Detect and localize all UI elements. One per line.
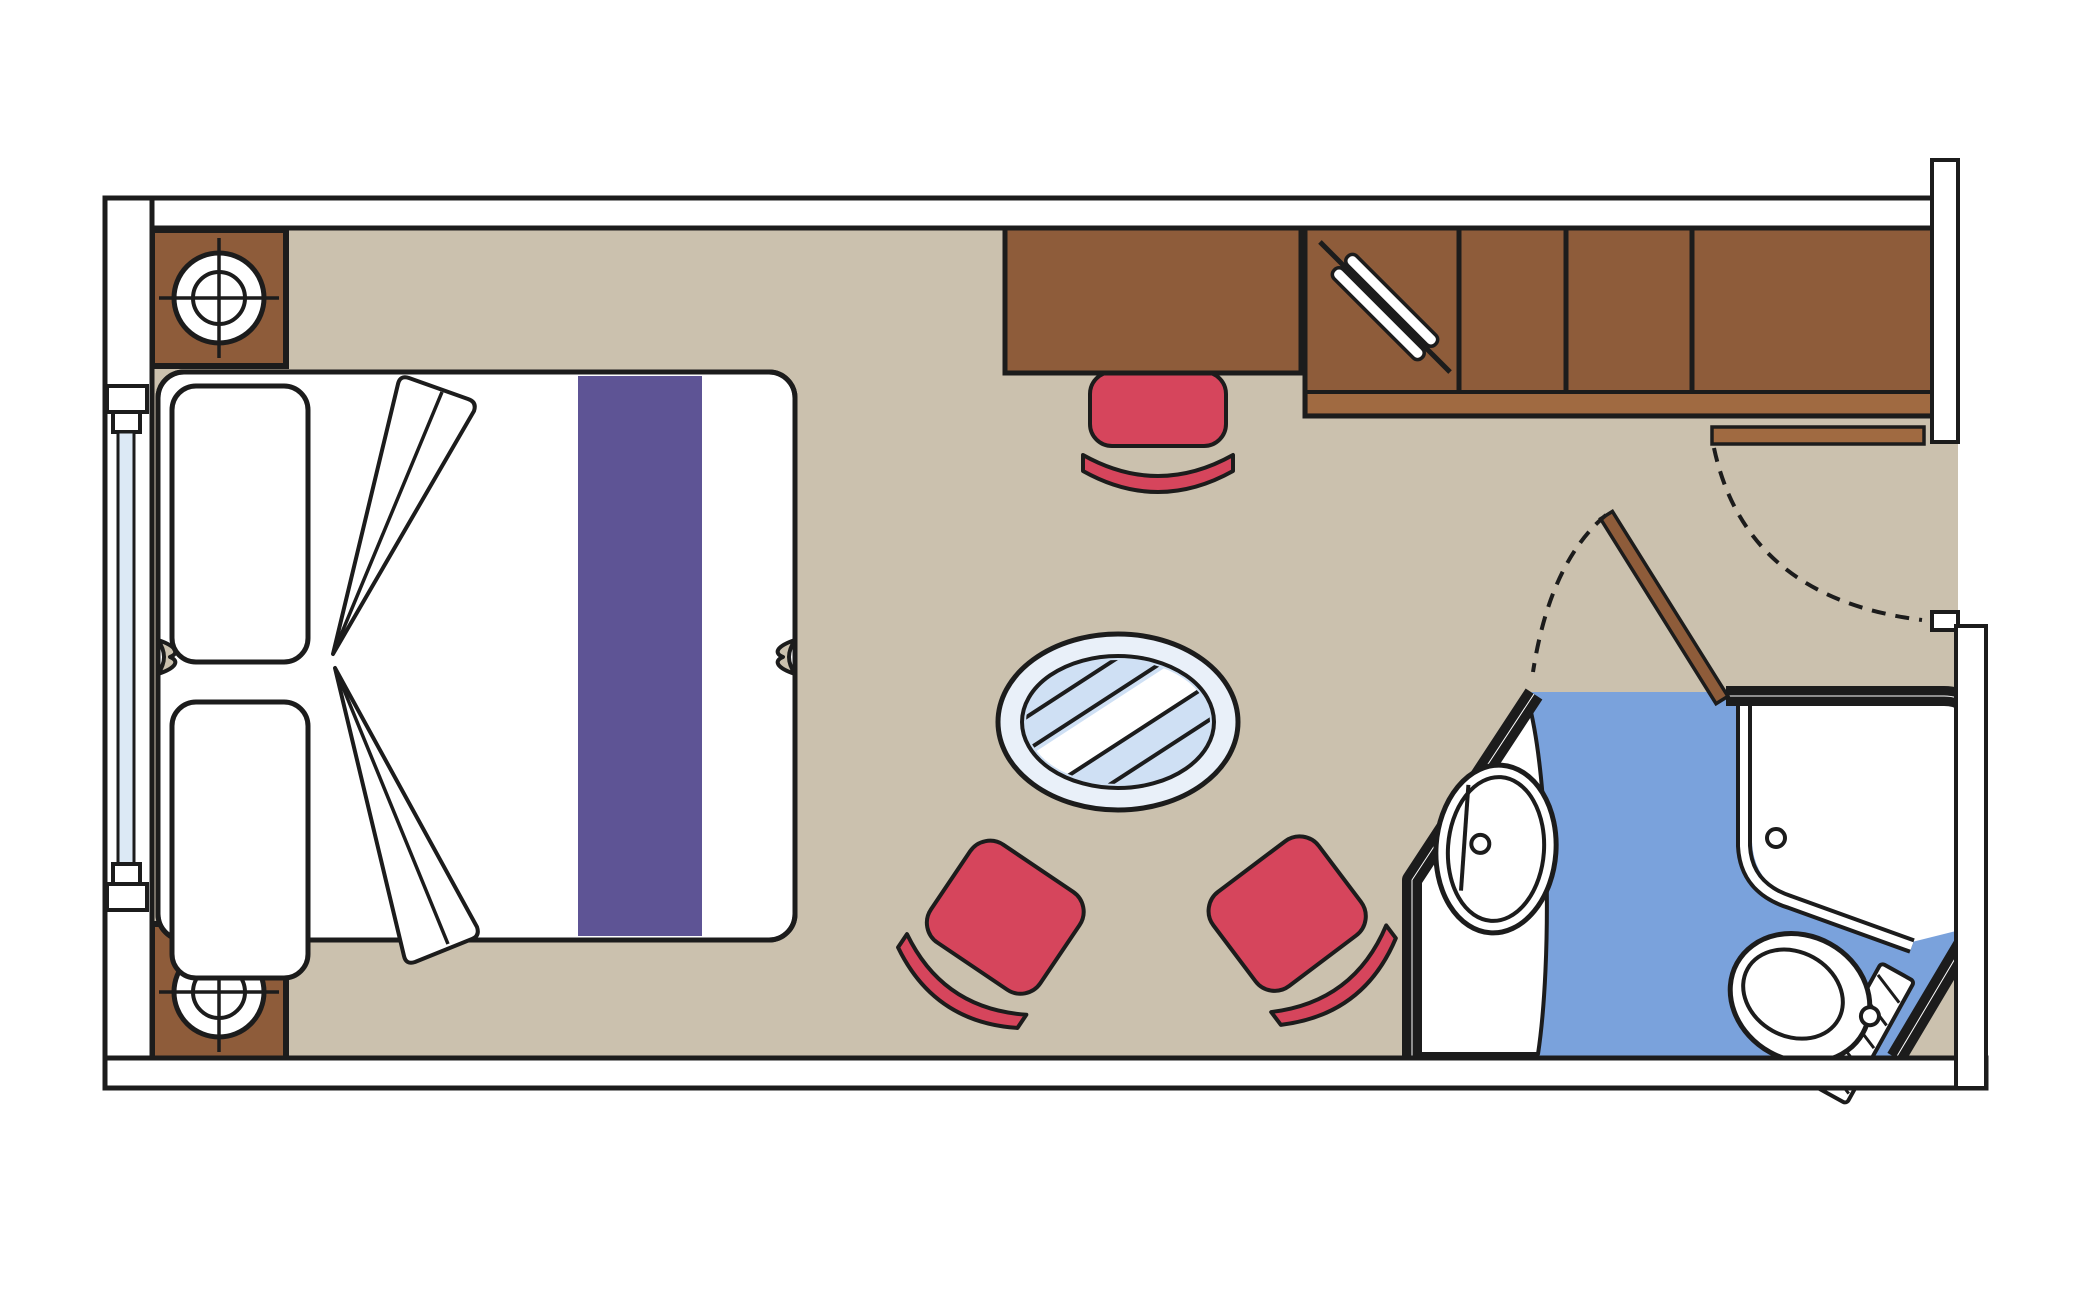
floor-plan-canvas xyxy=(0,0,2099,1299)
wardrobe-front-strip xyxy=(1308,394,1932,413)
bed-runner xyxy=(578,376,702,936)
nightstand-top xyxy=(152,230,286,366)
desk-chair-seat xyxy=(1090,372,1226,446)
window-mullion-bottom xyxy=(113,864,140,884)
window-mullion-top xyxy=(113,412,140,432)
bed xyxy=(158,372,795,978)
sink-drain-icon xyxy=(1471,834,1490,853)
shower-drain-icon xyxy=(1767,829,1785,847)
wall-right-upper xyxy=(1932,160,1958,442)
desk-chair xyxy=(1083,372,1233,492)
wall-top xyxy=(105,198,1937,228)
wall-bottom xyxy=(105,1058,1986,1088)
wardrobe xyxy=(1305,228,1935,416)
window-frame-cap-top xyxy=(107,386,147,412)
window-frame-cap-bottom xyxy=(107,884,147,910)
entrance-door-leaf xyxy=(1712,427,1924,444)
pillow-top xyxy=(172,386,308,662)
desk xyxy=(1005,228,1301,373)
wall-right-lower xyxy=(1956,626,1986,1088)
window-glass xyxy=(118,432,134,864)
pillow-bottom xyxy=(172,702,308,978)
floor-plan xyxy=(0,0,2099,1299)
